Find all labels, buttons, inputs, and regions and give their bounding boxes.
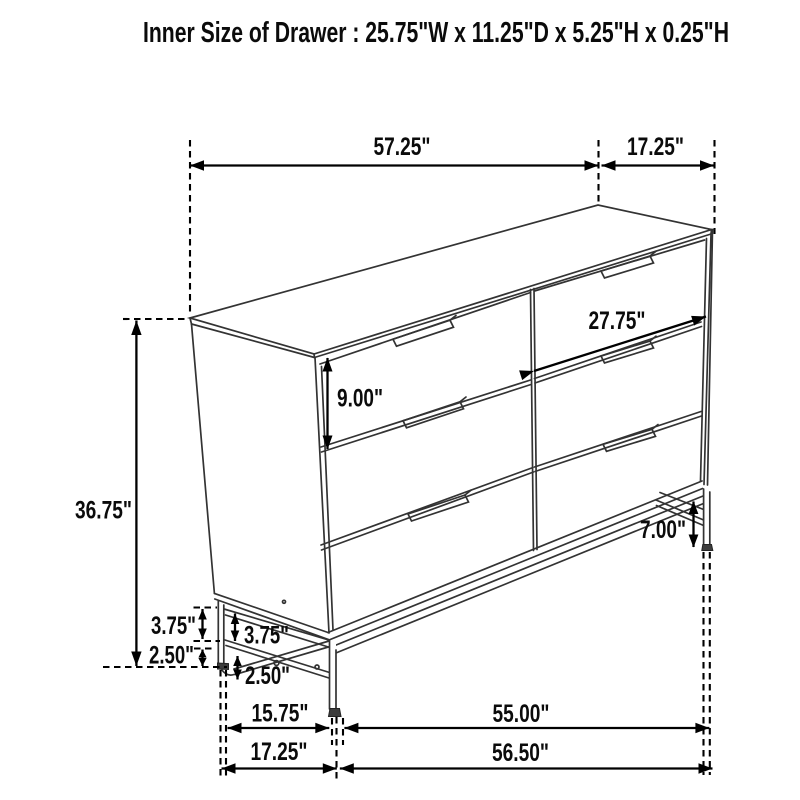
svg-text:36.75": 36.75" [75, 497, 132, 525]
svg-text:9.00": 9.00" [337, 385, 383, 413]
svg-text:57.25": 57.25" [374, 133, 431, 161]
svg-text:3.75": 3.75" [151, 612, 196, 640]
svg-text:27.75": 27.75" [589, 307, 646, 335]
svg-text:17.25": 17.25" [627, 133, 684, 161]
svg-text:7.00": 7.00" [640, 516, 686, 544]
svg-text:17.25": 17.25" [251, 738, 308, 766]
svg-text:55.00": 55.00" [493, 700, 550, 728]
svg-text:56.50": 56.50" [492, 739, 549, 767]
svg-text:2.50": 2.50" [245, 662, 290, 690]
svg-text:2.50": 2.50" [149, 642, 194, 670]
svg-text:3.75": 3.75" [244, 622, 289, 650]
svg-text:Inner Size of Drawer : 25.75"W: Inner Size of Drawer : 25.75"W x 11.25"D… [143, 17, 729, 49]
svg-text:15.75": 15.75" [252, 700, 309, 728]
